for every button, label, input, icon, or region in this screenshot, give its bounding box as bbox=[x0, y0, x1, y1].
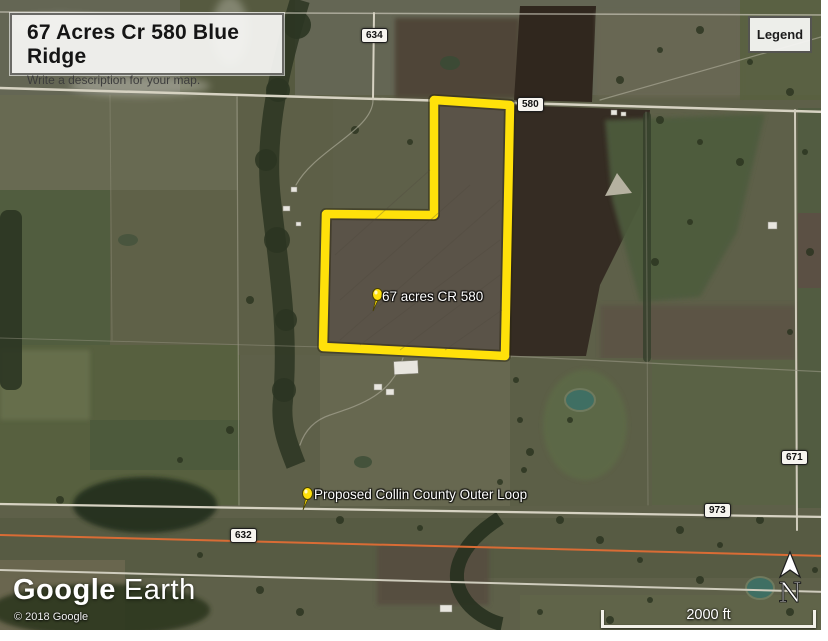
road-shield-632: 632 bbox=[230, 528, 257, 543]
satellite-imagery-canvas[interactable] bbox=[0, 0, 828, 641]
north-label: N bbox=[778, 578, 802, 608]
road-shield-973: 973 bbox=[704, 503, 731, 518]
road-shield-580: 580 bbox=[517, 97, 544, 112]
google-earth-map-view[interactable]: 67 acres CR 580 Proposed Collin County O… bbox=[0, 0, 828, 641]
scale-bar: 2000 ft bbox=[601, 607, 816, 628]
legend-label: Legend bbox=[757, 27, 803, 42]
map-title: 67 Acres Cr 580 Blue Ridge bbox=[27, 21, 270, 69]
north-arrow-icon: N bbox=[770, 550, 810, 608]
scale-bar-label: 2000 ft bbox=[601, 607, 816, 623]
legend-panel[interactable]: Legend bbox=[748, 16, 812, 53]
copyright-text: © 2018 Google bbox=[14, 611, 88, 623]
logo-earth: Earth bbox=[124, 574, 196, 606]
placemark-label-outer-loop[interactable]: Proposed Collin County Outer Loop bbox=[314, 487, 527, 502]
road-shield-671: 671 bbox=[781, 450, 808, 465]
logo-google: Google bbox=[13, 574, 116, 606]
map-title-box[interactable]: 67 Acres Cr 580 Blue Ridge Write a descr… bbox=[10, 13, 284, 75]
road-shield-634: 634 bbox=[361, 28, 388, 43]
map-description-placeholder[interactable]: Write a description for your map. bbox=[27, 73, 270, 87]
placemark-label-parcel[interactable]: 67 acres CR 580 bbox=[382, 289, 483, 304]
frame-border-right bbox=[821, 0, 828, 641]
google-earth-logo: GoogleEarth bbox=[13, 574, 196, 607]
placemark-pin-icon[interactable] bbox=[296, 487, 314, 511]
frame-border-bottom bbox=[0, 630, 828, 641]
scale-bar-line bbox=[601, 625, 816, 628]
